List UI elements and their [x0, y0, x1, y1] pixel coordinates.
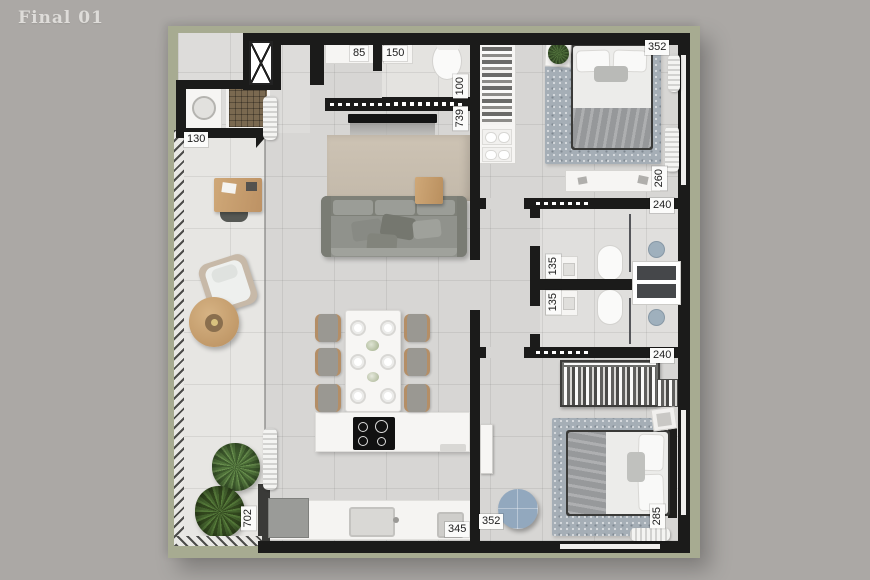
plate-icon [380, 388, 396, 404]
basin-icon [192, 96, 216, 120]
laundry-basin-unit [184, 86, 222, 130]
dining-chair [315, 384, 341, 412]
dim-kitchen-width: 352 [479, 514, 503, 529]
wall-bath-left-a [530, 198, 540, 218]
dining-chair [404, 314, 430, 342]
bathroom-window-upper [637, 266, 676, 280]
bedroom1-bed [570, 40, 654, 152]
shower-glass-panel [629, 214, 631, 272]
bed-blanket [568, 432, 606, 514]
dresser-item [577, 176, 587, 184]
shower-glass-panel [629, 298, 631, 344]
burner-icon [375, 420, 388, 433]
kitchen-gray-cabinet [268, 498, 309, 538]
wall-entry-left [310, 33, 324, 85]
wall-bath-left-b [530, 246, 540, 306]
desk-item [246, 182, 257, 191]
bedroom1-dresser [565, 170, 661, 192]
rolled-towel-icon [499, 133, 509, 142]
dim-vanity1: 135 [546, 254, 561, 278]
sofa-throw-pillow [412, 219, 442, 240]
bedroom2-door-opening [486, 347, 524, 358]
plate-icon [350, 354, 366, 370]
leaning-mirror [651, 406, 678, 431]
faucet-icon [393, 517, 399, 523]
rack-shelf [482, 147, 512, 162]
tv-icon [348, 114, 437, 123]
dining-chair [315, 348, 341, 376]
bedroom2-door-leaf [480, 424, 493, 474]
sofa-back-cushion [333, 200, 373, 215]
bathroom2-slider-track [536, 351, 590, 354]
rolled-towel-icon [499, 151, 509, 159]
wall-entry-stub [373, 33, 382, 71]
shower-drain-icon [648, 309, 665, 326]
bedroom1-window [681, 55, 686, 185]
bedroom1-door-opening [486, 198, 524, 209]
hanging-clothes-icon [658, 380, 678, 406]
curtain-icon [668, 54, 680, 92]
wall-bath-left-c [530, 334, 540, 347]
dining-chair [404, 384, 430, 412]
dim-living-wall: 739 [453, 106, 468, 130]
burner-icon [358, 436, 368, 446]
bedroom2-window [681, 410, 686, 515]
plate-icon [380, 354, 396, 370]
cooktop-icon [353, 417, 395, 450]
kitchen-sink [349, 507, 395, 537]
dim-wc-width: 150 [383, 46, 407, 61]
sofa [321, 196, 467, 257]
dim-bedroom1-dresser: 260 [652, 166, 667, 190]
curtain-icon [665, 126, 679, 172]
bedroom2-bottom-window [560, 544, 660, 549]
burner-icon [377, 437, 386, 446]
kitchen-island [315, 412, 470, 452]
rack-shelf [482, 129, 512, 145]
burner-icon [358, 422, 368, 432]
plate-icon [350, 320, 366, 336]
balcony-railing-left [174, 130, 184, 546]
plant-icon [212, 443, 260, 491]
bed-accent-pillow [627, 452, 645, 482]
dining-chair [315, 314, 341, 342]
wall-main-vertical-lower [470, 310, 480, 541]
table-flowers-icon [366, 340, 379, 351]
plant-icon [548, 43, 569, 64]
dim-bedroom1-width: 352 [645, 40, 669, 55]
tv-feature-wall [327, 135, 470, 201]
dim-balcony-length: 702 [241, 506, 256, 530]
balcony-desk [214, 178, 262, 212]
vanity-sink-icon [563, 263, 575, 276]
blue-pouf [498, 489, 538, 529]
hanging-clothes-icon [564, 367, 656, 405]
dim-bathroom2-width: 240 [650, 348, 674, 363]
rolled-towel-icon [486, 133, 496, 142]
vanity-sink-icon [563, 297, 575, 310]
elevator-shaft-icon [249, 41, 273, 85]
sofa-arm-left [321, 196, 331, 257]
tv-console-shadow [350, 123, 435, 135]
dim-service-width: 130 [184, 132, 208, 147]
bathroom1-slider-track [536, 202, 590, 205]
wardrobe-rail [564, 363, 656, 365]
desk-paper [221, 182, 236, 194]
dim-bathroom1-width: 240 [650, 198, 674, 213]
hanging-clothes-icon [482, 47, 512, 125]
dim-bedroom2-width: 285 [650, 504, 665, 528]
bedroom1-wardrobe-rack [478, 42, 516, 164]
dresser-item [637, 175, 648, 185]
wc-slider-track [394, 102, 458, 105]
bedroom2-wardrobe [560, 360, 660, 407]
plate-icon [350, 388, 366, 404]
bed-blanket [573, 108, 651, 148]
sofa-back-cushion [375, 200, 415, 215]
plan-title: Final 01 [18, 8, 104, 28]
plate-icon [380, 320, 396, 336]
bathroom-window-frame [633, 262, 680, 304]
dining-chair [404, 348, 430, 376]
bathroom2-toilet-icon [597, 289, 623, 325]
dim-wc-wall: 100 [453, 74, 468, 98]
wall-service-top [176, 80, 252, 89]
rolled-towel-icon [486, 151, 496, 159]
curtain-icon [630, 528, 670, 541]
dim-entry-cabinet: 85 [350, 46, 368, 61]
dim-vanity2: 135 [546, 290, 561, 314]
mirror-glass [656, 412, 672, 427]
shower-drain-icon [648, 241, 665, 258]
side-table-wood [415, 177, 443, 204]
sofa-front-edge [331, 248, 457, 256]
dim-kitchen-counter: 345 [445, 522, 469, 537]
curtain-icon [263, 96, 277, 140]
bathroom1-toilet-icon [597, 245, 623, 281]
plant-icon [195, 486, 245, 538]
balcony-railing-bottom [176, 536, 262, 546]
curtain-icon [263, 428, 277, 490]
bed-accent-pillow [594, 66, 628, 82]
tray-item [211, 319, 218, 326]
wall-top [243, 33, 678, 45]
sofa-arm-right [457, 196, 467, 257]
wall-main-vertical-upper [470, 33, 480, 260]
island-towel [440, 444, 466, 452]
table-flowers-icon [367, 372, 379, 382]
bathroom-window-lower [637, 284, 676, 298]
balcony-round-table [189, 297, 239, 347]
